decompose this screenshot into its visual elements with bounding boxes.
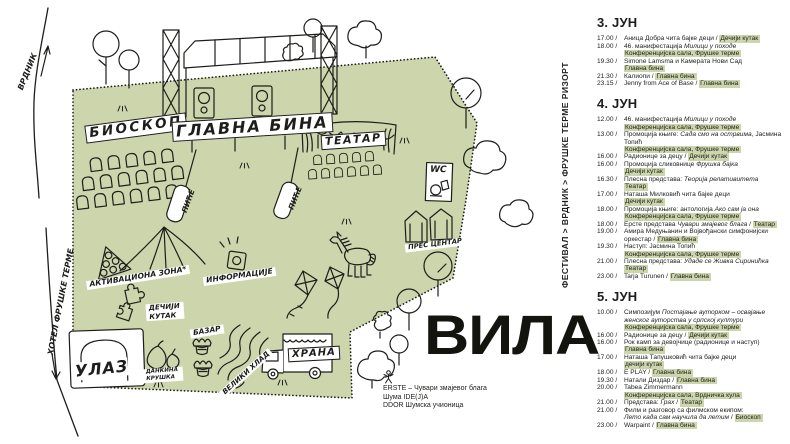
event-time: 23.15 / xyxy=(597,80,617,87)
event-time: 12.00 / xyxy=(597,116,617,123)
event-time: 16.00 / xyxy=(597,161,617,168)
map-label-wc: WC xyxy=(430,165,447,176)
festival-logo: ВИЛА xyxy=(424,306,599,364)
event-description: Наташа Милковић чита бајке дециДечији ку… xyxy=(624,191,730,206)
schedule-event: 17.00 /Наташа Тапушковић чита бајке деци… xyxy=(597,354,788,368)
day-heading: 3. ЈУН xyxy=(597,15,788,30)
map-label-deciji-kutak: ДЕЧИЈИ КУТАК xyxy=(145,302,184,322)
event-venue: Главна бина xyxy=(624,346,665,354)
event-venue: Главна бина xyxy=(652,369,693,377)
event-time: 19.30 / xyxy=(597,377,617,384)
event-venue: Дечији кутак xyxy=(624,168,665,176)
schedule-event: 18.00 /Промоција књиге: антологија Ако с… xyxy=(597,206,788,220)
event-title-italic: Удаде се Живка Сиринићка xyxy=(684,258,769,265)
schedule-event: 18.00 /E PLAY / Главна бина xyxy=(597,369,788,376)
event-time: 17.00 / xyxy=(597,354,617,361)
schedule-event: 19.30 /Simone Lamsma и Камерата Нови Сад… xyxy=(597,58,788,72)
schedule-event: 23.00 /Tarja Turunen / Главна бина xyxy=(597,273,788,280)
event-description: Аница Добра чита бајке деци / Дечији кут… xyxy=(624,35,760,43)
event-description: 46. манифестација Милици у походеКонфере… xyxy=(624,43,741,58)
event-description: Jenny from Ace of Base / Главна бина xyxy=(624,80,740,88)
event-description: Наташа Тапушковић чита бајке децидечији … xyxy=(624,354,736,369)
schedule-event: 21.30 /Калиопи / Главна бина xyxy=(597,73,788,80)
road-to-vrdnik xyxy=(34,8,50,198)
event-venue: Дечији кутак xyxy=(719,35,760,43)
event-venue: Главна бина xyxy=(670,273,711,281)
legend-line: DDOR Шумска учионица xyxy=(383,402,487,411)
event-time: 17.00 / xyxy=(597,35,617,42)
event-title-italic: Лето када сам научила да летим xyxy=(624,414,729,421)
event-time: 21.00 / xyxy=(597,407,617,414)
event-description: Наступ: Јасмина ТопићКонференцијска сала… xyxy=(624,243,741,258)
day-heading: 4. ЈУН xyxy=(597,96,788,111)
map-label-hrana: ХРАНА xyxy=(288,346,341,362)
event-venue: Театар xyxy=(624,265,648,273)
event-title-italic: Милици у походе xyxy=(684,43,736,50)
event-description: Рок камп за девојчице (радионице и насту… xyxy=(624,339,760,354)
schedule-event: 20.00 /Tabea ZimmermannКонференцијска са… xyxy=(597,384,788,398)
schedule-event: 16.00 /Радионице за децу / Дечији кутак xyxy=(597,153,788,160)
event-title-italic: Ако сам ја она xyxy=(715,206,759,213)
event-venue: Театар xyxy=(753,221,777,229)
event-description: Tarja Turunen / Главна бина xyxy=(624,273,711,281)
schedule-event: 17.00 /Аница Добра чита бајке деци / Деч… xyxy=(597,35,788,42)
event-venue: Конференцијска сала, Фрушке терме xyxy=(624,213,741,221)
event-description: Радионице за децу / Дечији кутак xyxy=(624,153,729,161)
legend-line: Шума IDE(Ј)А xyxy=(383,394,487,403)
event-description: Simone Lamsma и Камерата Нови СадГлавна … xyxy=(624,58,742,73)
event-venue: Конференцијска сала, Фрушке терме xyxy=(624,324,741,332)
event-description: 46. манифестација Милици у походеКонфере… xyxy=(624,116,741,131)
tree-icon xyxy=(304,19,322,52)
event-venue: Главна бина xyxy=(656,422,697,430)
event-title-italic: Грах xyxy=(660,399,674,406)
schedule-day-1: 3. ЈУН 17.00 /Аница Добра чита бајке дец… xyxy=(597,15,788,87)
tree-icon xyxy=(500,200,533,227)
event-time: 18.00 / xyxy=(597,221,617,228)
schedule-event: 17.00 /Наташа Милковић чита бајке дециДе… xyxy=(597,191,788,205)
event-time: 18.00 / xyxy=(597,43,617,50)
leaping-person-icon xyxy=(383,370,487,384)
tree-icon xyxy=(390,335,408,365)
event-description: Симпозијум Постајање ауторком – освајање… xyxy=(624,309,765,331)
tree-icon xyxy=(119,50,139,88)
event-description: Ерсте представа Чувари змајевог блага / … xyxy=(624,221,777,229)
schedule-event: 19.30 /Натали Диздар / Главна бина xyxy=(597,377,788,384)
event-description: Промоција књиге: Сада смо на острвима, Ј… xyxy=(624,131,781,153)
event-venue: Конференцијска сала, Фрушке терме xyxy=(624,146,741,154)
event-time: 18.00 / xyxy=(597,206,617,213)
event-venue: дечији кутак xyxy=(624,361,664,369)
event-description: E PLAY / Главна бина xyxy=(624,369,693,377)
schedule-event: 21.00 /Филм и разговор са филмском екипо… xyxy=(597,407,788,421)
event-time: 21.30 / xyxy=(597,73,617,80)
schedule-event: 16.30 /Плесна представа: Теорија релатив… xyxy=(597,176,788,190)
day-events: 12.00 /46. манифестација Милици у походе… xyxy=(597,116,788,280)
event-venue: Главна бина xyxy=(676,377,717,385)
day-events: 17.00 /Аница Добра чита бајке деци / Деч… xyxy=(597,35,788,87)
schedule-event: 16.00 /Промоција сликовнице Фрушка бајка… xyxy=(597,161,788,175)
event-time: 21.00 / xyxy=(597,258,617,265)
event-time: 19.00 / xyxy=(597,228,617,235)
event-description: Промоција књиге: антологија Ако сам ја о… xyxy=(624,206,759,221)
event-description: Представа: Грах / Театар xyxy=(624,399,704,407)
event-time: 16.00 / xyxy=(597,153,617,160)
event-title-italic: Чувари змајевог блага xyxy=(677,221,747,228)
schedule-day-3: 5. ЈУН 10.00 /Симпозијум Постајање аутор… xyxy=(597,289,788,429)
map-label-dankina-kruska: ДАНКИНА КРУШКА xyxy=(143,367,184,384)
event-venue: Конференцијска сала, Фрушке терме xyxy=(624,50,741,58)
event-description: Амира Медуњанин и Војвођански симфонијск… xyxy=(624,228,768,243)
event-title-italic: Фрушка бајка xyxy=(696,161,738,168)
event-time: 19.30 / xyxy=(597,58,617,65)
event-description: Филм и разговор са филмском екипом:Лето … xyxy=(624,407,763,422)
schedule-event: 10.00 /Симпозијум Постајање ауторком – о… xyxy=(597,309,788,331)
map-legend: ERSTE – Чувари змајевог блага Шума IDE(Ј… xyxy=(383,370,487,411)
event-description: Плесна представа: Теорија релативитетаТе… xyxy=(624,176,758,191)
event-venue: Главна бина xyxy=(655,73,696,81)
event-venue: Биоскоп xyxy=(735,414,763,422)
schedule-event: 23.00 /Warpaint / Главна бина xyxy=(597,422,788,429)
event-time: 20.00 / xyxy=(597,384,617,391)
day-heading: 5. ЈУН xyxy=(597,289,788,304)
schedule-panel: 3. ЈУН 17.00 /Аница Добра чита бајке дец… xyxy=(597,15,788,438)
schedule-event: 19.30 /Наступ: Јасмина ТопићКонференцијс… xyxy=(597,243,788,257)
event-description: Tabea ZimmermannКонференцијска сала, Врд… xyxy=(624,384,742,399)
event-time: 13.00 / xyxy=(597,131,617,138)
schedule-event: 13.00 /Промоција књиге: Сада смо на остр… xyxy=(597,131,788,153)
event-description: Натали Диздар / Главна бина xyxy=(624,377,717,385)
event-description: Радионице за децу / Дечији кутак xyxy=(624,332,729,340)
event-venue: Театар xyxy=(680,399,704,407)
schedule-event: 16.00 /Радионице за децу / Дечији кутак xyxy=(597,332,788,339)
event-time: 19.30 / xyxy=(597,243,617,250)
event-venue: Театар xyxy=(624,183,648,191)
event-description: Промоција сликовнице Фрушка бајкаДечији … xyxy=(624,161,738,176)
event-time: 21.00 / xyxy=(597,399,617,406)
festival-poster: ВРДНИК ХОТЕЛ ФРУШКЕ ТЕРМЕ БИОСКОП ГЛАВНА… xyxy=(0,0,790,444)
schedule-event: 21.00 /Плесна представа: Удаде се Живка … xyxy=(597,258,788,272)
schedule-event: 18.00 /46. манифестација Милици у походе… xyxy=(597,43,788,57)
event-venue: Главна бина xyxy=(699,80,740,88)
schedule-event: 16.00 /Рок камп за девојчице (радионице … xyxy=(597,339,788,353)
event-time: 23.00 / xyxy=(597,422,617,429)
event-venue: Дечији кутак xyxy=(624,198,665,206)
event-description: Плесна представа: Удаде се Живка Сиринић… xyxy=(624,258,769,273)
schedule-event: 12.00 /46. манифестација Милици у походе… xyxy=(597,116,788,130)
arrow-up-icon xyxy=(41,46,50,76)
day-events: 10.00 /Симпозијум Постајање ауторком – о… xyxy=(597,309,788,429)
tree-icon xyxy=(93,31,119,84)
event-title-italic: Милици у походе xyxy=(684,116,736,123)
event-description: Калиопи / Главна бина xyxy=(624,73,697,81)
schedule-event: 23.15 /Jenny from Ace of Base / Главна б… xyxy=(597,80,788,87)
event-time: 16.30 / xyxy=(597,176,617,183)
event-title-italic: Теорија релативитета xyxy=(684,176,758,183)
tree-icon xyxy=(348,21,382,58)
schedule-day-2: 4. ЈУН 12.00 /46. манифестација Милици у… xyxy=(597,96,788,280)
event-venue: Главна бина xyxy=(624,65,665,73)
event-time: 18.00 / xyxy=(597,369,617,376)
bush-icon xyxy=(283,43,303,60)
event-title-italic: Постајање ауторком – освајање женског ау… xyxy=(624,309,765,323)
event-time: 23.00 / xyxy=(597,273,617,280)
event-venue: Конференцијска сала, Врдничка кула xyxy=(624,392,742,400)
event-venue: Дечији кутак xyxy=(688,153,729,161)
event-venue: Конференцијска сала, Фрушке терме xyxy=(624,124,741,132)
event-time: 16.00 / xyxy=(597,339,617,346)
event-title-italic: Сада смо на острвима xyxy=(680,131,751,138)
schedule-event: 19.00 /Амира Медуњанин и Војвођански сим… xyxy=(597,228,788,242)
event-time: 16.00 / xyxy=(597,332,617,339)
event-time: 17.00 / xyxy=(597,191,617,198)
event-venue: Конференцијска сала, Фрушке терме xyxy=(624,251,741,259)
schedule-event: 21.00 /Представа: Грах / Театар xyxy=(597,399,788,406)
schedule-event: 18.00 /Ерсте представа Чувари змајевог б… xyxy=(597,221,788,228)
legend-line: ERSTE – Чувари змајевог блага xyxy=(383,385,487,394)
event-venue: Дечији кутак xyxy=(688,332,729,340)
festival-breadcrumb-vertical: ФЕСТИВАЛ > ВРДНИК > ФРУШКЕ ТЕРМЕ РИЗОРТ xyxy=(560,12,570,288)
event-description: Warpaint / Главна бина xyxy=(624,422,697,430)
event-time: 10.00 / xyxy=(597,309,617,316)
